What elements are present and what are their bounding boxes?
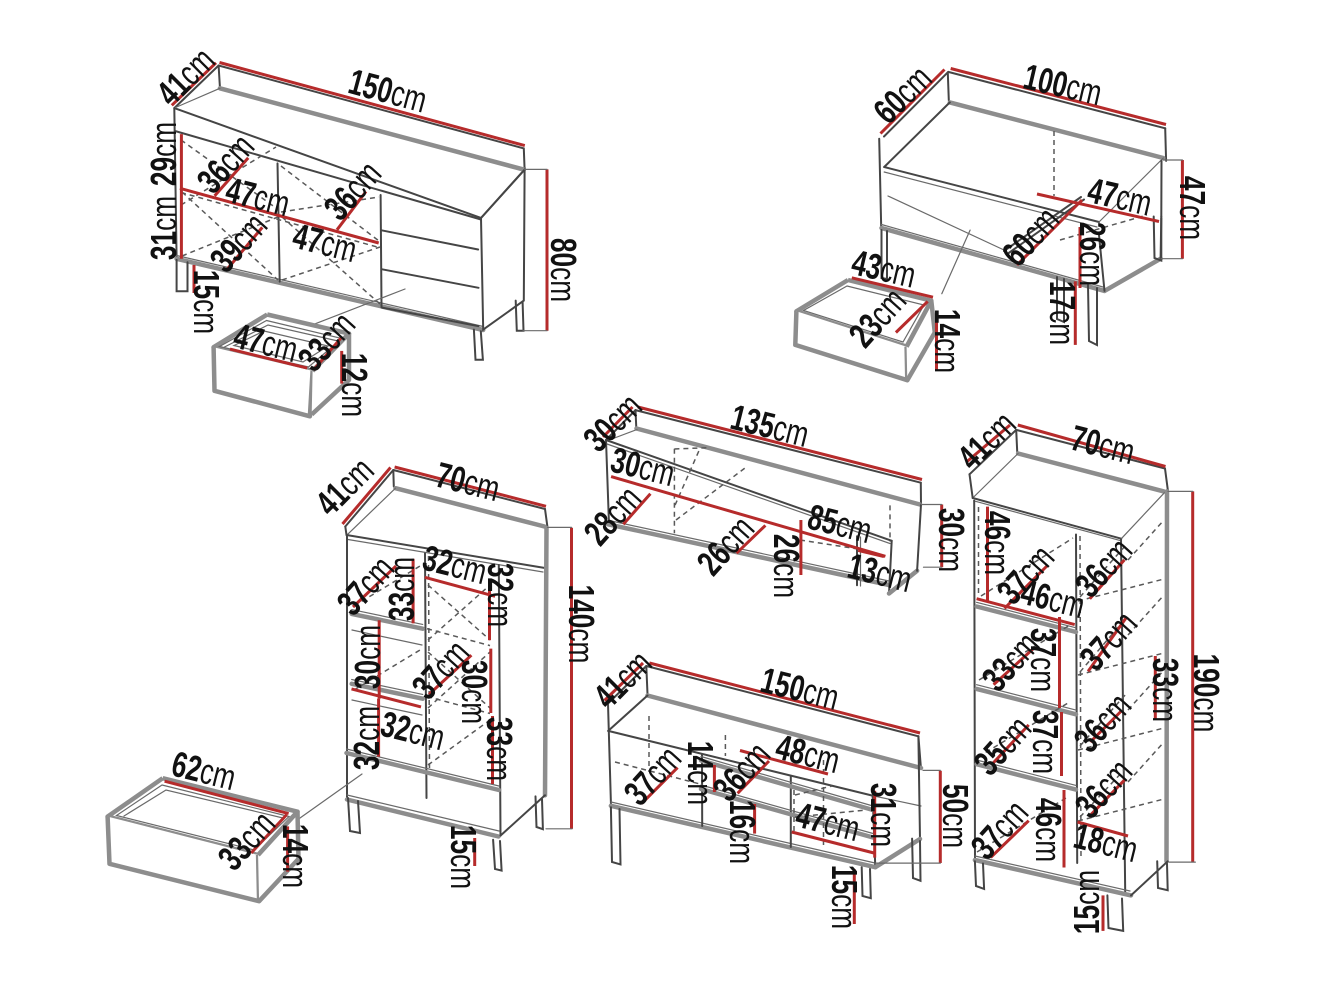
- svg-text:32cm: 32cm: [480, 563, 521, 627]
- svg-text:33cm: 33cm: [1145, 658, 1186, 722]
- svg-text:15cm: 15cm: [824, 865, 865, 929]
- svg-text:16cm: 16cm: [722, 800, 763, 864]
- svg-text:47cm: 47cm: [1172, 176, 1213, 240]
- svg-text:33cm: 33cm: [381, 557, 422, 621]
- svg-text:17cm: 17cm: [1042, 281, 1083, 345]
- svg-text:30cm: 30cm: [454, 660, 495, 724]
- svg-text:80cm: 80cm: [543, 238, 584, 302]
- svg-text:31cm: 31cm: [143, 196, 184, 260]
- svg-text:190cm: 190cm: [1186, 654, 1227, 733]
- svg-text:14cm: 14cm: [275, 824, 316, 888]
- svg-text:14cm: 14cm: [927, 309, 968, 373]
- svg-text:26cm: 26cm: [1072, 222, 1113, 286]
- svg-text:12cm: 12cm: [334, 353, 375, 417]
- svg-text:26cm: 26cm: [766, 534, 807, 598]
- svg-text:33cm: 33cm: [479, 717, 520, 781]
- svg-text:37cm: 37cm: [1023, 628, 1064, 692]
- svg-text:30cm: 30cm: [347, 625, 388, 689]
- svg-text:15cm: 15cm: [186, 270, 227, 334]
- svg-text:140cm: 140cm: [561, 585, 602, 664]
- svg-text:31cm: 31cm: [863, 783, 904, 847]
- svg-text:37cm: 37cm: [1025, 710, 1066, 774]
- svg-text:15cm: 15cm: [1066, 870, 1107, 934]
- svg-text:15cm: 15cm: [443, 825, 484, 889]
- svg-text:46cm: 46cm: [1028, 798, 1069, 862]
- svg-text:30cm: 30cm: [931, 508, 972, 572]
- svg-text:29cm: 29cm: [143, 122, 184, 186]
